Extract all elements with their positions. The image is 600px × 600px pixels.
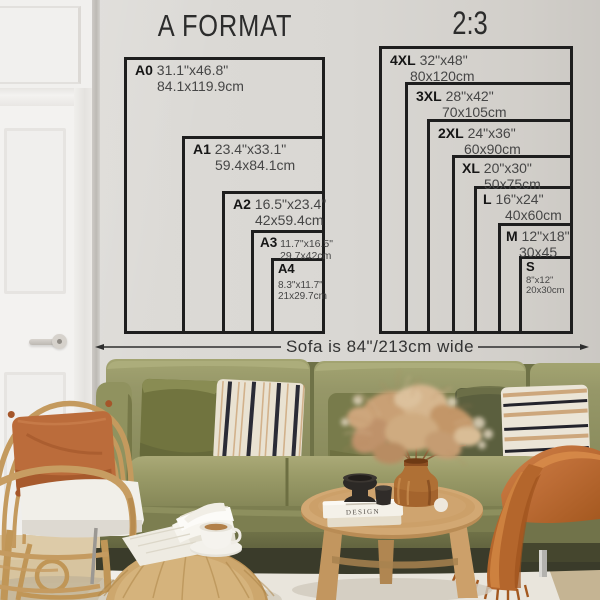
svg-text:DESIGN: DESIGN xyxy=(346,507,380,516)
